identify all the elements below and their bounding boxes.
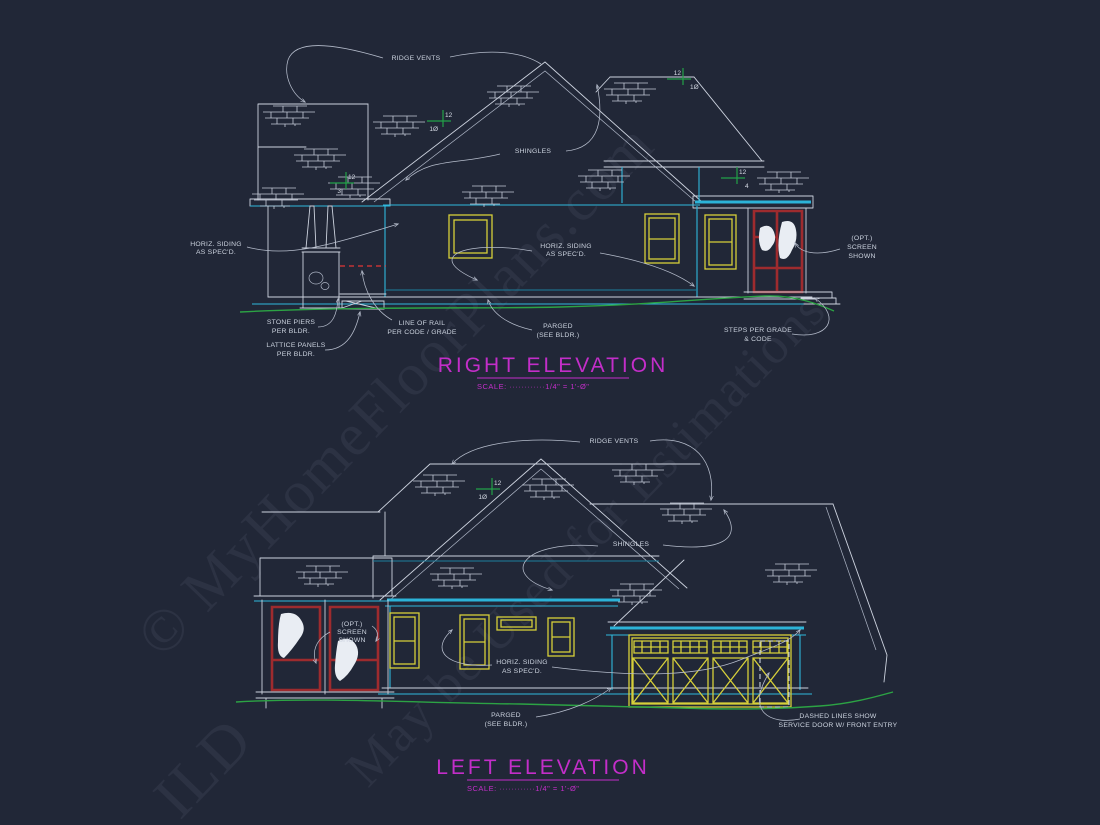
shingle-hatch [294, 149, 346, 170]
shingle-hatch [263, 106, 315, 127]
curtain-blob [335, 639, 358, 681]
shingle-hatch [610, 584, 662, 605]
pitch-rise: 12 [674, 70, 682, 77]
pitch-run: 1Ø [478, 494, 487, 501]
pitch-rise: 12 [445, 112, 453, 119]
window-square [449, 215, 492, 258]
svg-text:AS SPEC'D.: AS SPEC'D. [546, 251, 586, 258]
left-elevation-drawing: 12 1Ø RIDGE VENTS SHINGLES (OPT.) [236, 438, 898, 793]
svg-text:HORIZ. SIDING: HORIZ. SIDING [496, 659, 548, 666]
svg-text:AS SPEC'D.: AS SPEC'D. [502, 668, 542, 675]
right-elevation-drawing: 12 1Ø 12 3 12 1Ø 12 4 [190, 46, 877, 392]
pitch-run: 3 [337, 188, 341, 195]
window-double-hung-small [548, 618, 574, 656]
ridge-vents-label: RIDGE VENTS [392, 55, 441, 62]
svg-text:(SEE BLDR.): (SEE BLDR.) [485, 721, 528, 728]
service-door-dashed [760, 641, 789, 707]
svg-text:PER BLDR.: PER BLDR. [277, 351, 315, 358]
opt-screen-label: (OPT.) SCREEN SHOWN [847, 235, 877, 260]
svg-text:(OPT.): (OPT.) [341, 621, 362, 628]
window-double-hung [645, 214, 679, 263]
window-double-hung [460, 615, 489, 669]
parged-label: PARGED (SEE BLDR.) [537, 323, 580, 339]
shingle-hatch [462, 186, 514, 207]
grade-line [236, 692, 893, 709]
svg-text:HORIZ. SIDING: HORIZ. SIDING [190, 241, 242, 248]
opt-screen-label: (OPT.) SCREEN SHOWN [337, 621, 367, 644]
svg-text:LATTICE PANELS: LATTICE PANELS [266, 342, 325, 349]
steps-label: STEPS PER GRADE & CODE [724, 327, 792, 343]
svg-text:SERVICE DOOR W/ FRONT ENTRY: SERVICE DOOR W/ FRONT ENTRY [779, 722, 898, 729]
pitch-marker: 12 3 [330, 172, 356, 195]
screened-porch [256, 600, 394, 708]
shingle-hatch [430, 568, 482, 589]
window-double-hung [390, 613, 419, 668]
window-double-hung-right [705, 215, 736, 269]
pitch-marker: 12 1Ø [427, 110, 453, 133]
pitch-rise: 12 [348, 174, 356, 181]
elevation-drawings: 12 1Ø 12 3 12 1Ø 12 4 [0, 0, 1100, 825]
shingle-hatch [296, 566, 348, 587]
svg-text:PER BLDR.: PER BLDR. [272, 328, 310, 335]
svg-text:STONE PIERS: STONE PIERS [267, 319, 316, 326]
svg-text:HORIZ. SIDING: HORIZ. SIDING [540, 243, 592, 250]
curtain-blob [278, 613, 304, 658]
shingle-hatch-group [296, 464, 817, 605]
pitch-run: 1Ø [690, 84, 699, 91]
shingle-hatch [765, 564, 817, 585]
leader-lines [314, 440, 800, 720]
ridge-vents-label: RIDGE VENTS [590, 438, 639, 445]
svg-text:SCREEN: SCREEN [337, 629, 367, 636]
svg-text:PARGED: PARGED [543, 323, 573, 330]
svg-text:& CODE: & CODE [744, 336, 772, 343]
shingle-hatch-group [252, 83, 809, 209]
shingle-hatch [413, 475, 465, 496]
shingle-hatch [660, 503, 712, 524]
svg-text:(OPT.): (OPT.) [851, 235, 872, 242]
lattice-panels-label: LATTICE PANELS PER BLDR. [266, 342, 325, 358]
svg-text:SHOWN: SHOWN [848, 253, 875, 260]
screened-porch [744, 208, 840, 304]
right-elevation-scale: SCALE: ············1/4" = 1'-Ø" [477, 382, 589, 391]
right-elevation-title: RIGHT ELEVATION [438, 354, 669, 377]
horiz-siding-center-label: HORIZ. SIDING AS SPEC'D. [540, 243, 592, 258]
svg-text:STEPS PER GRADE: STEPS PER GRADE [724, 327, 792, 334]
curtain-blob [778, 221, 796, 259]
pitch-run: 4 [745, 183, 749, 190]
svg-text:AS SPEC'D.: AS SPEC'D. [196, 249, 236, 256]
stone-piers-label: STONE PIERS PER BLDR. [267, 319, 316, 335]
pitch-marker: 12 1Ø [667, 68, 699, 91]
svg-text:SHOWN: SHOWN [338, 637, 365, 644]
left-elevation-scale: SCALE: ············1/4" = 1'-Ø" [467, 784, 579, 793]
line-of-rail-label: LINE OF RAIL PER CODE / GRADE [387, 320, 457, 336]
shingle-hatch [487, 86, 539, 107]
parged-label: PARGED (SEE BLDR.) [485, 712, 528, 728]
window-transom [497, 617, 536, 630]
svg-text:PER CODE / GRADE: PER CODE / GRADE [387, 329, 457, 336]
garage-door [629, 635, 791, 707]
pitch-marker: 12 1Ø [476, 478, 502, 501]
curtain-blob [759, 226, 775, 251]
svg-text:LINE OF RAIL: LINE OF RAIL [399, 320, 445, 327]
roof-outline [250, 62, 813, 208]
shingle-hatch [373, 116, 425, 137]
svg-text:(SEE BLDR.): (SEE BLDR.) [537, 332, 580, 339]
shingle-hatch [757, 172, 809, 193]
blueprint-sheet: © MyHomeFloorPlans.com May be Used for E… [0, 0, 1100, 825]
shingle-hatch [522, 479, 574, 500]
dashed-lines-label: DASHED LINES SHOW SERVICE DOOR W/ FRONT … [779, 713, 898, 729]
garage-door-lights [634, 641, 787, 653]
horiz-siding-left-label: HORIZ. SIDING AS SPEC'D. [190, 241, 242, 256]
left-elevation-title: LEFT ELEVATION [436, 756, 650, 779]
shingle-hatch [604, 83, 656, 104]
pitch-marker: 12 4 [721, 167, 749, 190]
pitch-rise: 12 [494, 480, 502, 487]
shingles-label: SHINGLES [515, 148, 552, 155]
svg-text:SCREEN: SCREEN [847, 244, 877, 251]
pitch-rise: 12 [739, 169, 747, 176]
shingles-label: SHINGLES [613, 541, 650, 548]
pitch-run: 1Ø [429, 126, 438, 133]
svg-text:PARGED: PARGED [491, 712, 521, 719]
svg-text:DASHED LINES SHOW: DASHED LINES SHOW [799, 713, 876, 720]
shingle-hatch [612, 464, 664, 485]
horiz-siding-label: HORIZ. SIDING AS SPEC'D. [496, 659, 548, 675]
